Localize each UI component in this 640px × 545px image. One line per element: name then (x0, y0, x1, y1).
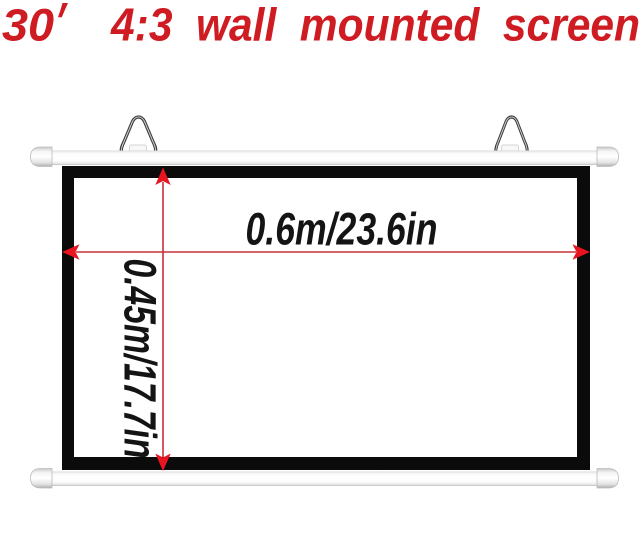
svg-text:4:3 wall mounted screen: 4:3 wall mounted screen (110, 0, 640, 51)
svg-text:0.45m/17.7in: 0.45m/17.7in (115, 259, 166, 459)
svg-text:30: 30 (2, 0, 54, 51)
svg-text:0.6m/23.6in: 0.6m/23.6in (246, 204, 438, 255)
